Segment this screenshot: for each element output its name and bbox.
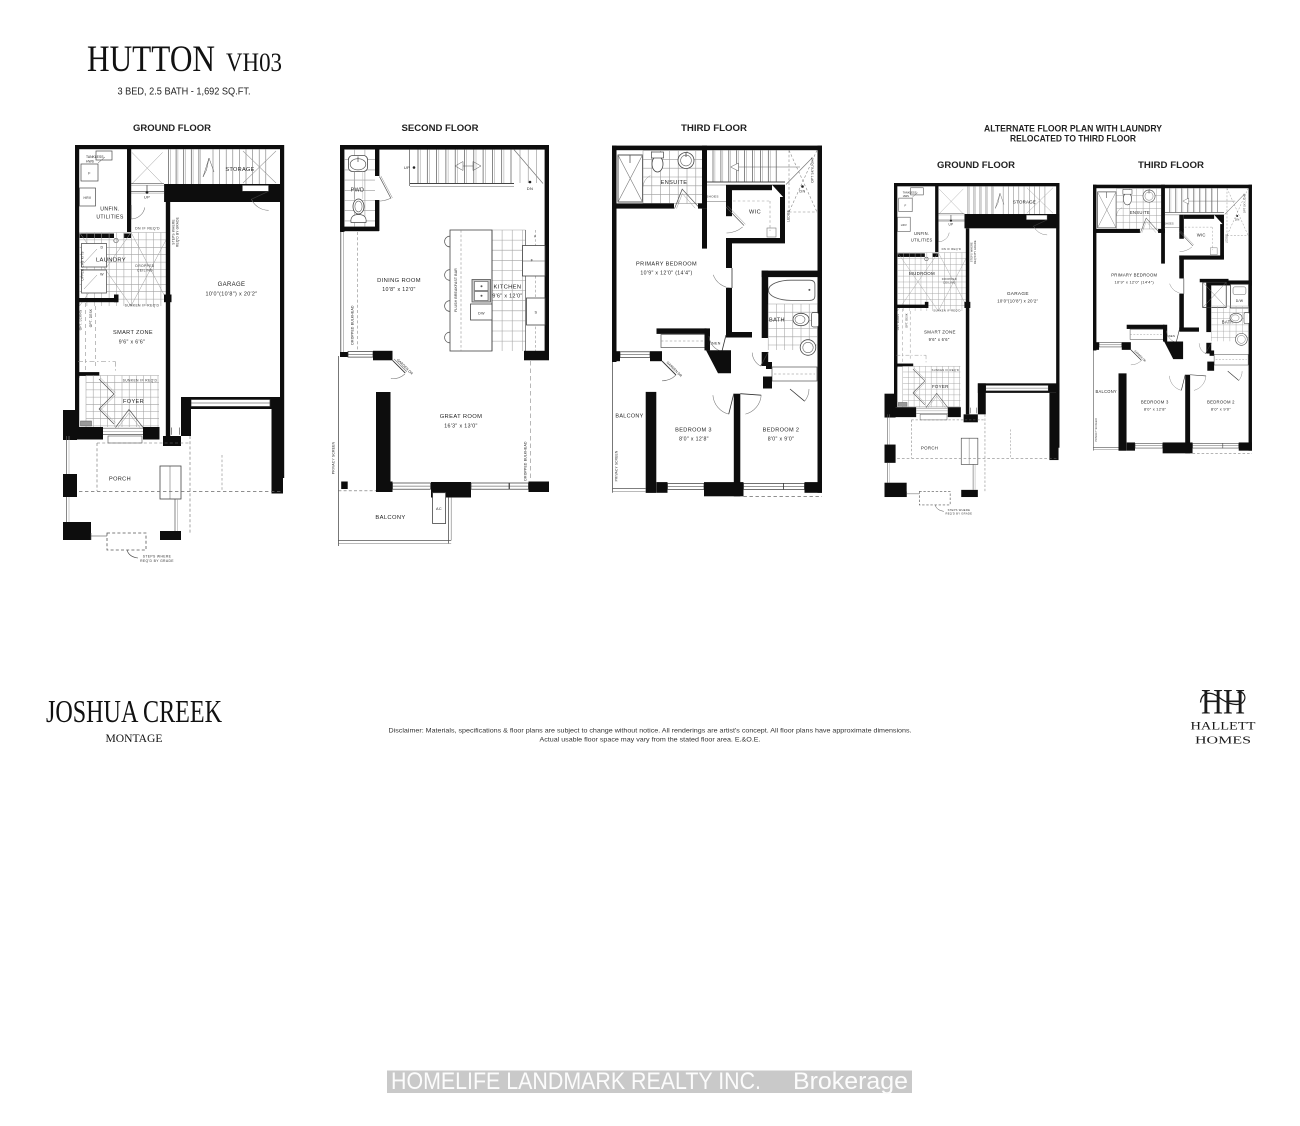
svg-text:BALCONY: BALCONY (615, 414, 643, 420)
svg-text:WIC: WIC (1197, 233, 1206, 238)
svg-text:SUNKEN IF REQ'D: SUNKEN IF REQ'D (932, 368, 959, 372)
svg-text:UPPER CAB KITS: UPPER CAB KITS (81, 251, 85, 280)
svg-text:MUDROOM: MUDROOM (909, 271, 935, 276)
svg-text:DN: DN (799, 190, 805, 194)
svg-text:DROPPED: DROPPED (942, 277, 957, 281)
svg-text:OPT SKYLIGHT: OPT SKYLIGHT (1244, 193, 1247, 213)
svg-text:UP: UP (948, 223, 953, 227)
svg-text:DN IF REQ'D: DN IF REQ'D (942, 247, 962, 251)
svg-text:SMART ZONE: SMART ZONE (924, 329, 956, 334)
svg-text:DN: DN (1235, 218, 1240, 222)
svg-text:GARAGE: GARAGE (218, 282, 246, 288)
svg-text:F: F (904, 203, 906, 207)
svg-text:DW: DW (478, 312, 485, 316)
svg-text:WIC: WIC (749, 210, 761, 216)
svg-text:HUTTON: HUTTON (87, 39, 215, 80)
svg-text:HRV: HRV (901, 223, 907, 227)
svg-text:THIRD FLOOR: THIRD FLOOR (681, 123, 747, 133)
svg-text:FLUSH BREAKFAST BAR: FLUSH BREAKFAST BAR (454, 268, 458, 312)
svg-text:GREAT ROOM: GREAT ROOM (440, 414, 483, 420)
svg-text:PRIVACY SCREEN: PRIVACY SCREEN (1095, 418, 1098, 442)
svg-text:F: F (88, 172, 91, 176)
svg-text:TANKLESS: TANKLESS (86, 155, 104, 159)
svg-text:STEPS WHERE: STEPS WHERE (143, 555, 172, 559)
svg-text:FOYER: FOYER (123, 399, 144, 405)
svg-text:REQ'D BY GRADE: REQ'D BY GRADE (140, 559, 174, 563)
svg-text:LEDGE: LEDGE (787, 210, 791, 222)
svg-text:UP: UP (144, 195, 150, 200)
svg-text:BALCONY: BALCONY (1096, 389, 1117, 394)
svg-text:10'9" x 12'0" (14'4"): 10'9" x 12'0" (14'4") (1115, 279, 1155, 284)
svg-text:GROUND FLOOR: GROUND FLOOR (133, 123, 211, 133)
svg-text:S: S (535, 311, 538, 315)
svg-text:STEPS WHERE: STEPS WHERE (948, 508, 971, 512)
svg-text:ALTERNATE FLOOR PLAN WITH LAUN: ALTERNATE FLOOR PLAN WITH LAUNDRY (984, 124, 1163, 134)
svg-text:OPT SKYLIGHT: OPT SKYLIGHT (811, 157, 815, 183)
svg-text:3 BED, 2.5 BATH - 1,692 SQ.FT.: 3 BED, 2.5 BATH - 1,692 SQ.FT. (118, 87, 251, 98)
svg-text:STORAGE: STORAGE (1013, 200, 1036, 205)
svg-text:LEDGE: LEDGE (1225, 234, 1228, 243)
svg-text:SECOND FLOOR: SECOND FLOOR (402, 123, 479, 133)
svg-text:UP: UP (404, 165, 410, 170)
svg-text:W: W (100, 273, 104, 277)
svg-text:KITCHEN: KITCHEN (494, 285, 522, 291)
svg-text:UTILITIES: UTILITIES (911, 237, 933, 242)
svg-text:PRIVACY SCREEN: PRIVACY SCREEN (615, 450, 619, 481)
svg-text:HALLETT: HALLETT (1191, 721, 1256, 733)
svg-text:DROPPED BULKHEAD: DROPPED BULKHEAD (351, 305, 355, 345)
svg-text:10'8" x 12'0": 10'8" x 12'0" (382, 287, 416, 293)
svg-text:DINING ROOM: DINING ROOM (377, 278, 421, 284)
svg-text:PRIMARY BEDROOM: PRIMARY BEDROOM (1111, 273, 1157, 278)
svg-text:REQ'D BY GRADE: REQ'D BY GRADE (176, 217, 180, 247)
svg-text:FOYER: FOYER (932, 384, 949, 389)
svg-text:PORCH: PORCH (109, 477, 131, 483)
svg-text:D/W: D/W (1236, 299, 1244, 303)
svg-text:UNFIN.: UNFIN. (100, 207, 119, 213)
svg-text:8'0" x 9'0": 8'0" x 9'0" (768, 437, 795, 443)
svg-text:LAUNDRY: LAUNDRY (96, 258, 126, 264)
svg-text:BEDROOM 2: BEDROOM 2 (1207, 400, 1235, 405)
svg-text:9'6" x 6'6": 9'6" x 6'6" (929, 337, 950, 342)
svg-text:AC: AC (436, 507, 442, 511)
svg-text:BALCONY: BALCONY (375, 515, 405, 521)
svg-text:TANKLESS: TANKLESS (903, 190, 917, 194)
svg-text:RELOCATED TO THIRD FLOOR: RELOCATED TO THIRD FLOOR (1010, 134, 1136, 144)
svg-text:CEILING: CEILING (137, 269, 153, 273)
svg-text:9'6" x 12'0": 9'6" x 12'0" (492, 294, 522, 300)
svg-text:10′0″(10′8″) x 20′2″: 10′0″(10′8″) x 20′2″ (205, 292, 257, 298)
svg-text:ENSUITE: ENSUITE (661, 180, 688, 186)
svg-text:LINEN: LINEN (708, 342, 720, 346)
svg-text:OPT. DESK: OPT. DESK (905, 313, 908, 328)
svg-text:UNFIN.: UNFIN. (914, 231, 929, 236)
svg-text:BEDROOM 3: BEDROOM 3 (675, 428, 712, 434)
svg-text:UTILITIES: UTILITIES (96, 215, 124, 221)
svg-text:THIRD FLOOR: THIRD FLOOR (1138, 160, 1204, 170)
svg-text:8'0" x 9'0": 8'0" x 9'0" (1211, 407, 1231, 412)
svg-text:SHOES: SHOES (706, 195, 719, 199)
svg-text:REQ'D BY GRADE: REQ'D BY GRADE (946, 512, 973, 516)
svg-text:HWS: HWS (86, 160, 95, 164)
svg-text:P: P (534, 235, 536, 239)
svg-text:HH: HH (1201, 682, 1245, 722)
svg-text:D: D (101, 246, 104, 250)
svg-text:10′0″(10′8″) x 20′2″: 10′0″(10′8″) x 20′2″ (997, 299, 1038, 304)
svg-text:8'0" x 12'8": 8'0" x 12'8" (1144, 407, 1167, 412)
svg-text:PRIVACY SCREEN: PRIVACY SCREEN (332, 441, 336, 474)
svg-text:VH03: VH03 (226, 47, 282, 77)
svg-text:GROUND FLOOR: GROUND FLOOR (937, 160, 1015, 170)
svg-text:PORCH: PORCH (921, 446, 938, 451)
svg-text:JOSHUA CREEK: JOSHUA CREEK (46, 693, 222, 729)
svg-text:Disclaimer: Materials, specifi: Disclaimer: Materials, specifications & … (389, 728, 912, 735)
svg-text:16'3" x 13'0": 16'3" x 13'0" (444, 424, 478, 430)
svg-text:DN: DN (527, 186, 533, 191)
svg-text:HOMES: HOMES (1195, 735, 1251, 747)
svg-text:OPT. LCKRS: OPT. LCKRS (79, 310, 83, 331)
svg-text:REQ'D BY GRADE: REQ'D BY GRADE (974, 240, 977, 264)
svg-text:SHOES: SHOES (1164, 222, 1174, 225)
svg-text:OPT. LCKRS: OPT. LCKRS (897, 314, 900, 330)
svg-text:GARAGE: GARAGE (1007, 291, 1029, 297)
svg-text:DROPPED BULKHEAD: DROPPED BULKHEAD (524, 441, 528, 481)
svg-text:HRV: HRV (84, 196, 92, 200)
svg-text:HWS: HWS (903, 194, 909, 198)
svg-text:SUNKEN IF REQ'D: SUNKEN IF REQ'D (123, 379, 158, 383)
svg-text:BEDROOM 2: BEDROOM 2 (763, 428, 800, 434)
svg-text:MONTAGE: MONTAGE (106, 733, 163, 745)
svg-text:PRIMARY BEDROOM: PRIMARY BEDROOM (636, 262, 697, 268)
svg-text:F: F (531, 259, 534, 263)
svg-text:DN IF REQ'D: DN IF REQ'D (135, 227, 160, 231)
svg-text:BATH: BATH (769, 318, 785, 324)
svg-text:CEILING: CEILING (943, 281, 956, 285)
svg-text:9'6" x 6'6": 9'6" x 6'6" (119, 340, 146, 346)
svg-text:SUNKEN IF REQ'D: SUNKEN IF REQ'D (125, 304, 160, 308)
svg-text:PWD: PWD (351, 188, 365, 194)
svg-text:10'9" x 12'0" (14'4"): 10'9" x 12'0" (14'4") (640, 271, 692, 277)
svg-text:Brokerage: Brokerage (793, 1068, 908, 1095)
svg-text:SMART ZONE: SMART ZONE (113, 330, 153, 336)
svg-text:8'0" x 12'8": 8'0" x 12'8" (679, 437, 709, 443)
svg-text:OPT. DESK: OPT. DESK (89, 308, 93, 327)
svg-text:DROPPED: DROPPED (135, 264, 154, 268)
svg-text:ENSUITE: ENSUITE (1130, 210, 1150, 215)
svg-text:BEDROOM 3: BEDROOM 3 (1141, 400, 1169, 405)
svg-text:Actual usable floor space may: Actual usable floor space may vary from … (540, 737, 761, 744)
svg-text:STORAGE: STORAGE (225, 167, 254, 173)
svg-text:SUNKEN IF REQ'D: SUNKEN IF REQ'D (933, 308, 960, 312)
svg-text:HOMELIFE LANDMARK REALTY INC.: HOMELIFE LANDMARK REALTY INC. (391, 1068, 761, 1095)
